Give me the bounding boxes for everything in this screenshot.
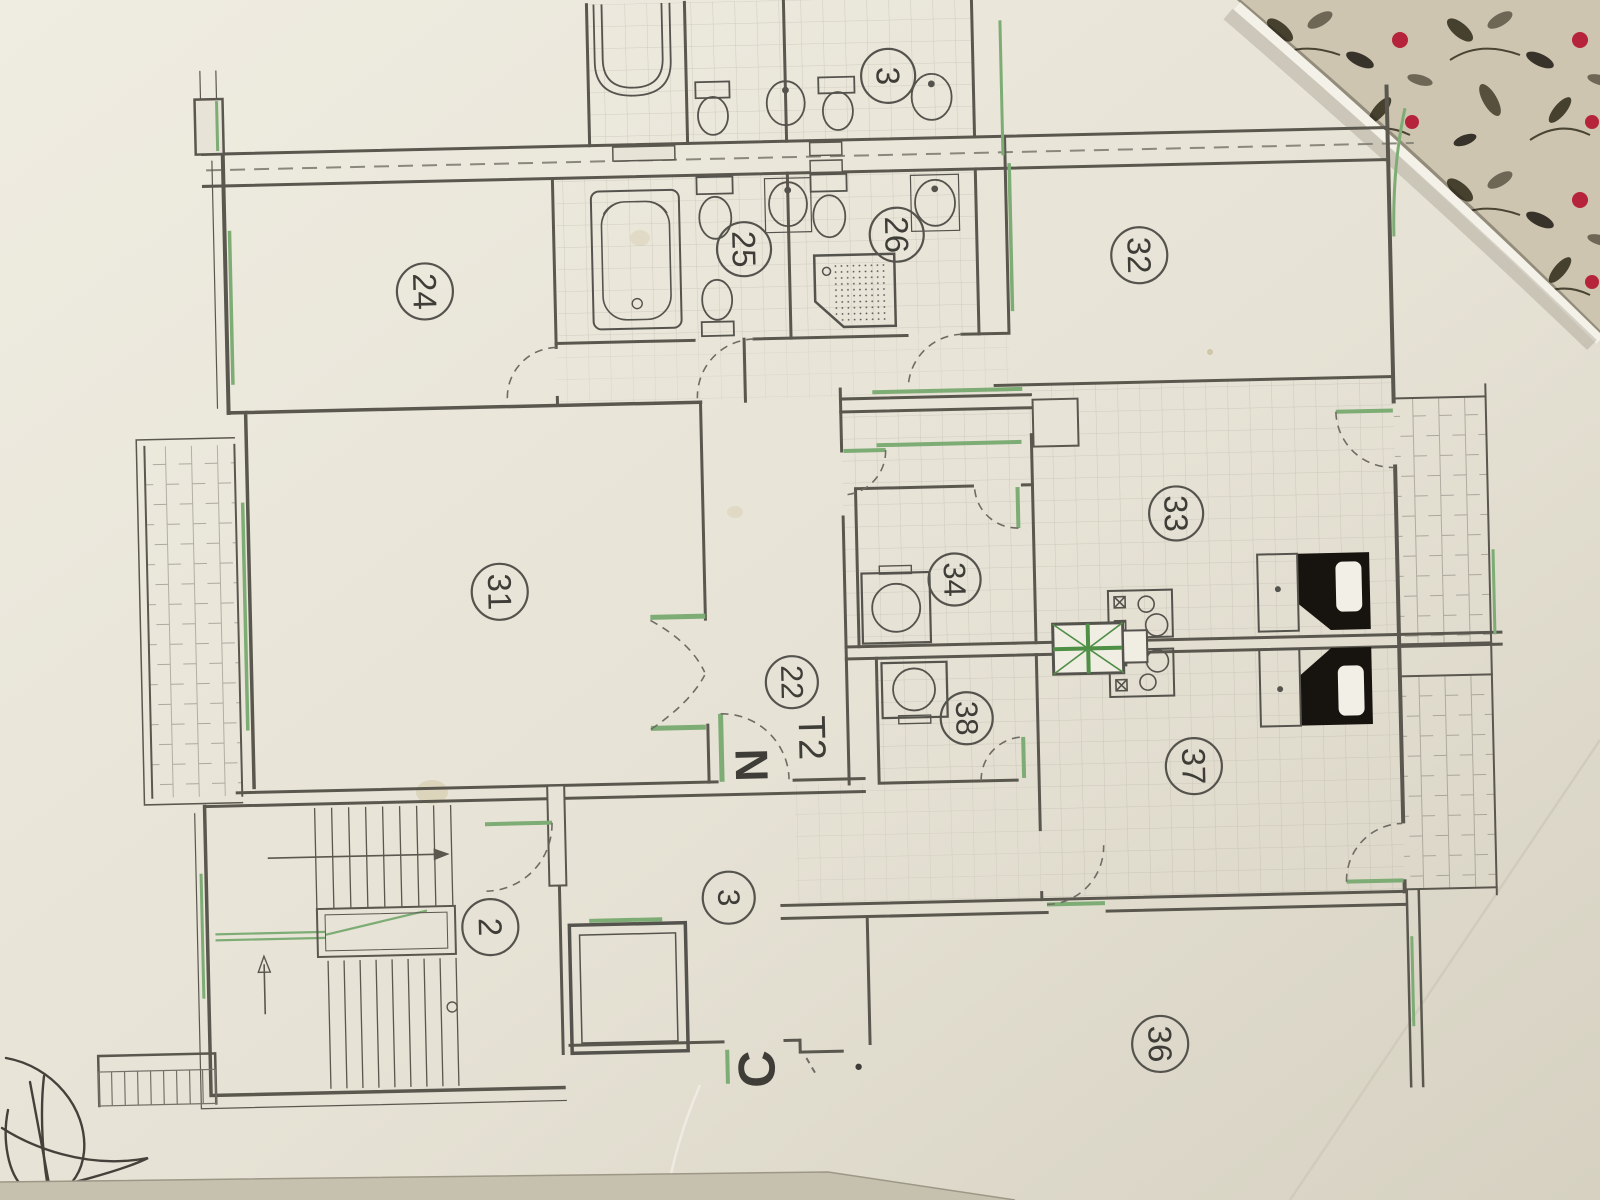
svg-text:24: 24: [406, 273, 444, 311]
elevator-threshold: [589, 919, 662, 921]
north-label: N: [725, 748, 778, 782]
entrance-door-leaf: [721, 714, 723, 782]
svg-text:32: 32: [1120, 236, 1158, 274]
cupboard: [1033, 399, 1079, 447]
window-balcony-right: [1493, 549, 1495, 634]
balcony-right-upper: [1394, 396, 1492, 644]
svg-text:37: 37: [1175, 747, 1213, 785]
balcony-right-lower: [1400, 674, 1497, 889]
unit-type-label: T2: [790, 715, 833, 760]
svg-text:26: 26: [878, 216, 916, 254]
svg-text:38: 38: [949, 701, 985, 736]
svg-text:34: 34: [937, 562, 973, 597]
svg-text:33: 33: [1157, 495, 1195, 533]
svg-text:36: 36: [1141, 1025, 1179, 1063]
svg-text:22: 22: [774, 665, 810, 700]
svg-text:25: 25: [725, 230, 763, 268]
floorplan-photo: 24 25 26 3 32 31 22 33 34 38 37 36: [0, 0, 1600, 1200]
svg-text:3: 3: [711, 889, 746, 907]
svg-text:3: 3: [869, 66, 906, 85]
balcony-left: [144, 445, 242, 798]
svg-text:31: 31: [481, 573, 519, 611]
window-room36: [1412, 936, 1414, 1026]
photo-scene: 24 25 26 3 32 31 22 33 34 38 37 36: [0, 0, 1600, 1200]
svg-text:2: 2: [472, 918, 509, 937]
section-label-c: C: [728, 1050, 787, 1089]
